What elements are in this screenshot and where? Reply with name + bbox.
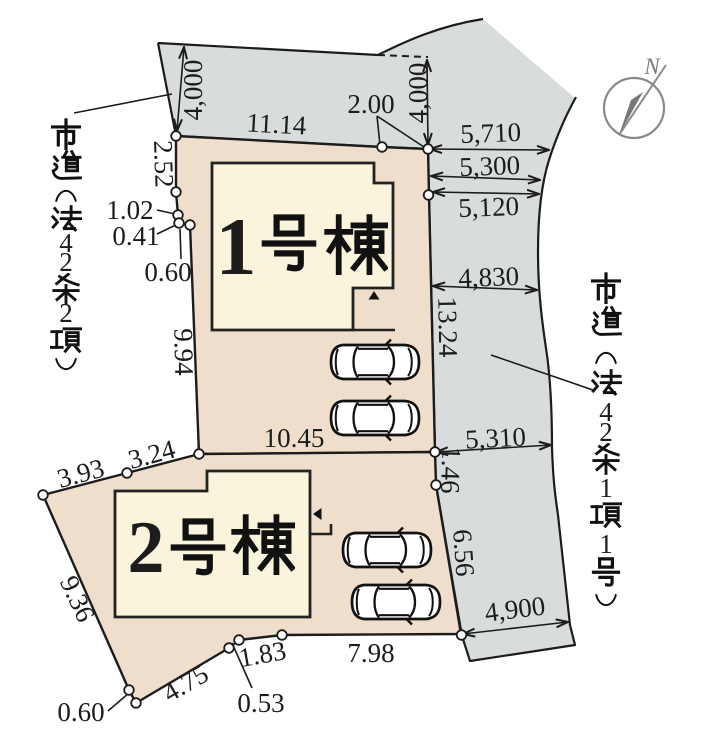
svg-text:7.98: 7.98 <box>347 638 394 668</box>
svg-text:1: 1 <box>216 201 257 292</box>
svg-text:1: 1 <box>599 473 613 503</box>
svg-text:5,120: 5,120 <box>458 191 520 223</box>
svg-text:0.60: 0.60 <box>57 697 104 727</box>
svg-text:4,000: 4,000 <box>178 60 208 121</box>
svg-text:10.45: 10.45 <box>264 423 325 453</box>
svg-text:1: 1 <box>599 529 613 559</box>
svg-text:2.52: 2.52 <box>148 140 180 188</box>
svg-text:2.00: 2.00 <box>347 89 394 119</box>
svg-text:0.60: 0.60 <box>144 257 191 287</box>
svg-text:4,000: 4,000 <box>403 63 433 124</box>
svg-text:2: 2 <box>128 507 165 589</box>
svg-text:5,310: 5,310 <box>464 421 526 454</box>
svg-text:1.46: 1.46 <box>435 446 467 494</box>
svg-text:5,300: 5,300 <box>459 150 521 182</box>
svg-text:9.94: 9.94 <box>168 328 199 376</box>
svg-text:0.41: 0.41 <box>112 221 159 251</box>
svg-text:2: 2 <box>599 417 613 447</box>
svg-text:6.56: 6.56 <box>447 528 480 577</box>
svg-text:0.53: 0.53 <box>237 688 284 718</box>
svg-text:2: 2 <box>59 298 73 328</box>
svg-text:4,830: 4,830 <box>458 261 520 293</box>
svg-text:13.24: 13.24 <box>432 296 463 358</box>
svg-text:N: N <box>643 54 661 79</box>
svg-text:5,710: 5,710 <box>460 117 522 149</box>
svg-text:11.14: 11.14 <box>246 107 308 140</box>
svg-text:2: 2 <box>59 247 73 277</box>
